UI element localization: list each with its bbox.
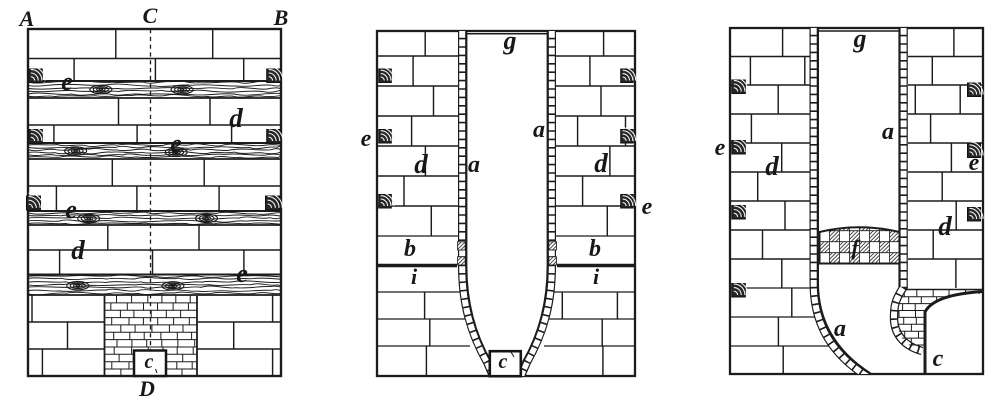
svg-text:a: a (468, 152, 480, 178)
svg-text:C: C (143, 3, 158, 28)
svg-text:d: d (938, 211, 952, 241)
svg-text:a: a (533, 117, 545, 143)
svg-text:b: b (404, 236, 416, 262)
svg-text:b: b (589, 236, 601, 262)
svg-text:i: i (593, 264, 600, 289)
svg-text:e: e (170, 129, 182, 158)
svg-text:g: g (503, 26, 517, 55)
svg-text:e: e (642, 194, 653, 220)
svg-text:g: g (853, 24, 867, 53)
svg-text:d: d (229, 103, 243, 133)
svg-text:A: A (18, 6, 35, 31)
svg-text:e: e (65, 195, 77, 224)
svg-text:d: d (414, 149, 428, 179)
svg-text:e: e (969, 150, 980, 176)
svg-text:D: D (138, 376, 155, 401)
svg-text:e: e (236, 259, 248, 288)
svg-text:d: d (71, 235, 85, 265)
svg-text:e: e (361, 126, 372, 152)
svg-text:c: c (933, 346, 944, 372)
svg-text:a: a (882, 119, 894, 145)
svg-text:e: e (61, 67, 73, 96)
svg-text:c: c (145, 351, 154, 373)
svg-text:d: d (594, 148, 608, 178)
svg-text:c: c (499, 351, 508, 373)
svg-text:d: d (765, 151, 779, 181)
svg-text:a: a (834, 316, 846, 342)
svg-text:i: i (411, 264, 418, 289)
svg-text:e: e (715, 135, 726, 161)
svg-text:B: B (273, 5, 289, 30)
